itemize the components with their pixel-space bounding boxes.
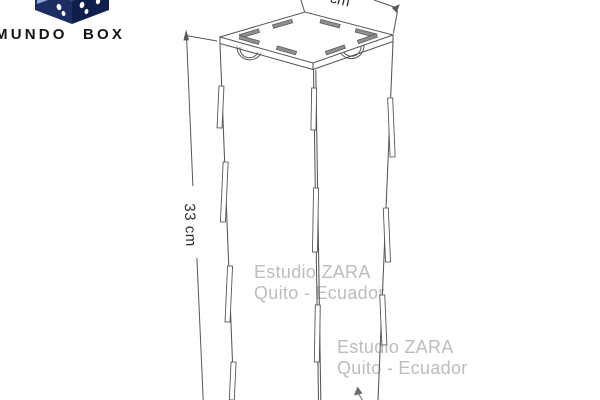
box-technical-drawing [0,0,600,400]
bottom-partial-arrow-line [358,393,363,400]
finger-tabs [217,86,395,400]
finger-pull-cutout-left [237,47,261,60]
top-dimension-line [374,0,396,8]
mundo-box-logo: MUNDO BOX [0,0,160,50]
finger-tab [314,305,320,362]
finger-tab [225,266,233,322]
finger-tab [311,88,317,130]
height-extension-line [186,36,217,42]
finger-tab [229,362,236,400]
height-dimension-line-upper [187,38,193,186]
height-dimension-line-lower [197,258,203,400]
top-dimension-arrow [392,4,400,13]
cube-left-face [35,0,72,24]
cube-right-face [72,0,109,24]
finger-tab [312,188,318,252]
canvas: Estudio ZARA Quito - Ecuador Estudio ZAR… [0,0,600,400]
height-dimension-arrow [183,30,189,41]
top-extension-line-right [393,11,397,34]
height-dimension-label: 33 cm [181,203,200,247]
cube-logo-icon [28,0,116,26]
brand-name: MUNDO BOX [0,26,125,43]
top-extension-line-left [301,0,305,12]
